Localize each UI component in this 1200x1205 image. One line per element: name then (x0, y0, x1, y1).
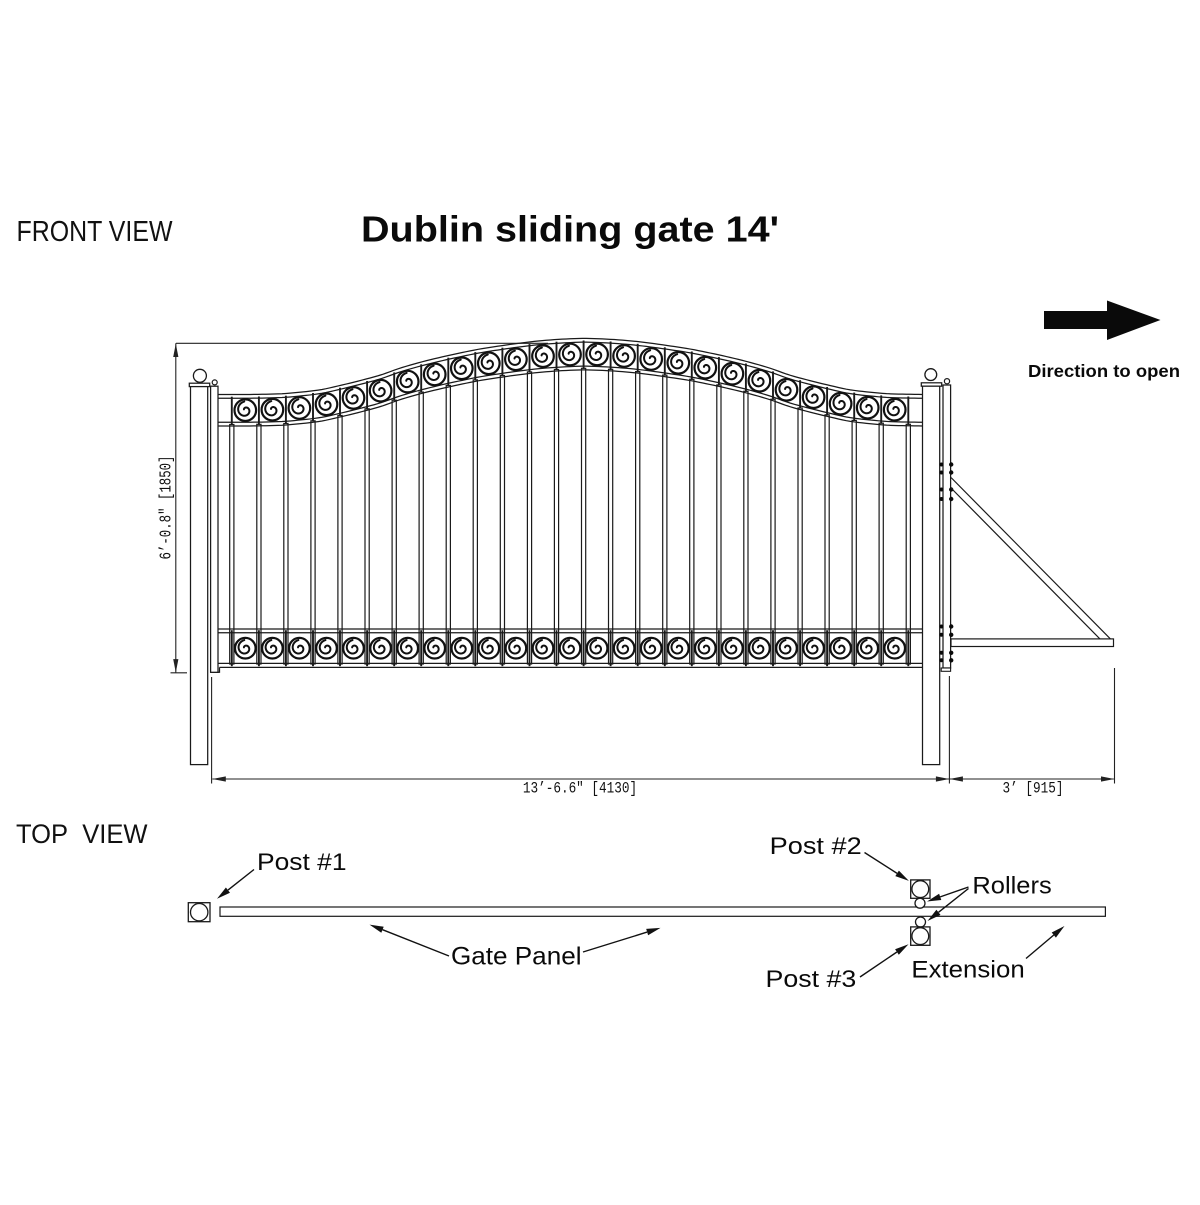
svg-text:6’-0.8" [1850]: 6’-0.8" [1850] (158, 456, 176, 560)
svg-text:Gate Panel: Gate Panel (451, 943, 582, 971)
svg-text:13’-6.6" [4130]: 13’-6.6" [4130] (523, 780, 637, 797)
svg-text:FRONT VIEW: FRONT VIEW (17, 216, 174, 248)
svg-text:3’ [915]: 3’ [915] (1003, 780, 1064, 797)
svg-text:Rollers: Rollers (972, 873, 1051, 900)
svg-text:Post #2: Post #2 (770, 833, 862, 860)
svg-text:Post #3: Post #3 (766, 966, 857, 993)
svg-text:Post #1: Post #1 (257, 849, 347, 876)
svg-text:TOP VIEW: TOP VIEW (16, 819, 148, 849)
svg-text:Extension: Extension (911, 956, 1024, 983)
svg-text:Direction to open: Direction to open (1028, 361, 1180, 381)
svg-text:Dublin sliding gate 14': Dublin sliding gate 14' (361, 209, 779, 250)
